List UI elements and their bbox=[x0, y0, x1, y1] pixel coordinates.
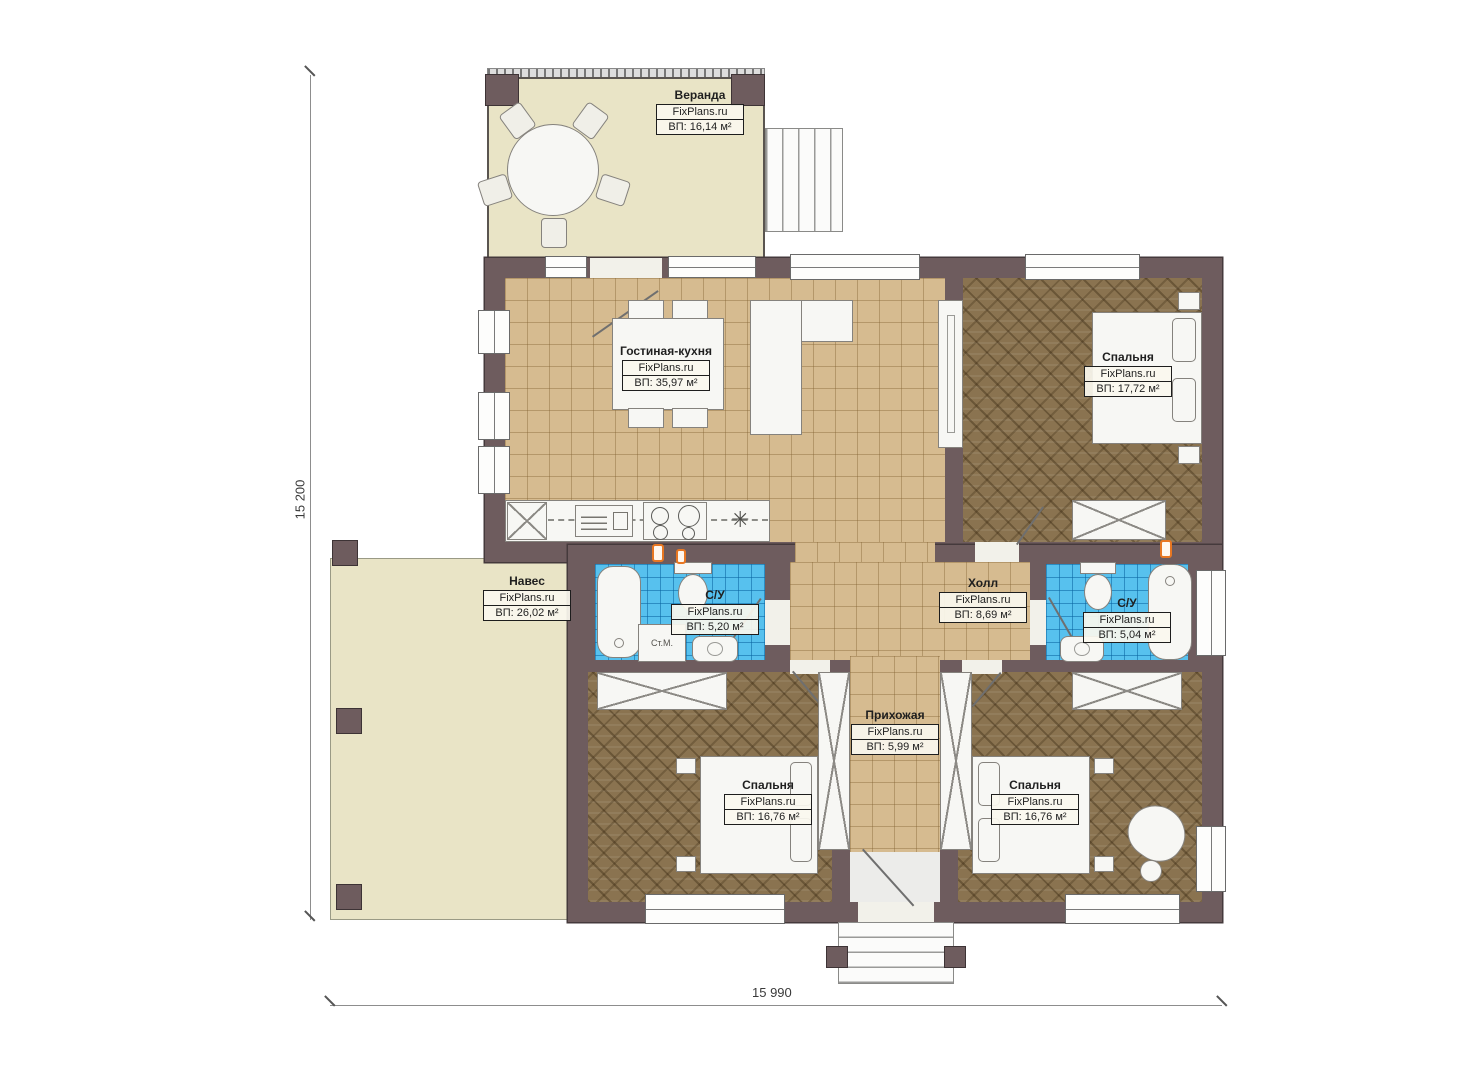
room-name: Навес bbox=[509, 574, 545, 588]
room-name: С/У bbox=[705, 588, 724, 602]
window bbox=[478, 392, 510, 440]
bathtub-drain bbox=[614, 638, 624, 648]
room-label-bedroom-bottom-right: Спальня FixPlans.ru ВП: 16,76 м² bbox=[970, 778, 1100, 825]
dining-chair bbox=[628, 408, 664, 428]
entry-vestibule-floor bbox=[850, 852, 940, 902]
nightstand bbox=[676, 758, 696, 774]
room-area: ВП: 5,04 м² bbox=[1084, 628, 1170, 642]
nightstand bbox=[676, 856, 696, 872]
room-area: ВП: 16,76 м² bbox=[725, 810, 811, 824]
window bbox=[545, 256, 587, 278]
wardrobe bbox=[1072, 672, 1182, 710]
window bbox=[1196, 570, 1226, 656]
wardrobe bbox=[597, 672, 727, 710]
veranda-post bbox=[485, 74, 519, 106]
room-name: Спальня bbox=[742, 778, 794, 792]
water-heater-icon bbox=[1160, 540, 1172, 558]
window bbox=[1065, 894, 1180, 924]
water-heater-icon bbox=[652, 544, 664, 562]
room-area: ВП: 5,20 м² bbox=[672, 620, 758, 634]
dimension-label-horizontal: 15 990 bbox=[752, 985, 792, 1000]
toilet-icon bbox=[1080, 562, 1116, 574]
brand-link: FixPlans.ru bbox=[1084, 613, 1170, 628]
porch-steps bbox=[838, 922, 954, 984]
room-label-hall: Холл FixPlans.ru ВП: 8,69 м² bbox=[918, 576, 1048, 623]
veranda-table bbox=[507, 124, 599, 216]
window bbox=[790, 254, 920, 280]
window bbox=[1025, 254, 1140, 280]
room-name: Холл bbox=[968, 576, 998, 590]
room-label-entry-hall: Прихожая FixPlans.ru ВП: 5,99 м² bbox=[830, 708, 960, 755]
room-label-bathroom-left: С/У FixPlans.ru ВП: 5,20 м² bbox=[650, 588, 780, 635]
room-area: ВП: 35,97 м² bbox=[623, 376, 709, 390]
room-label-bedroom-bottom-left: Спальня FixPlans.ru ВП: 16,76 м² bbox=[703, 778, 833, 825]
dining-chair bbox=[628, 300, 664, 320]
dimension-label-vertical: 15 200 bbox=[292, 480, 307, 520]
window bbox=[668, 256, 756, 278]
brand-link: FixPlans.ru bbox=[1085, 367, 1171, 382]
window bbox=[478, 446, 510, 494]
room-name: С/У bbox=[1117, 596, 1136, 610]
canopy-post bbox=[336, 708, 362, 734]
chair-icon bbox=[541, 218, 567, 248]
sink-icon bbox=[692, 636, 738, 662]
room-area: ВП: 5,99 м² bbox=[852, 740, 938, 754]
wardrobe bbox=[1072, 500, 1166, 540]
room-name: Спальня bbox=[1102, 350, 1154, 364]
room-label-bathroom-right: С/У FixPlans.ru ВП: 5,04 м² bbox=[1062, 596, 1192, 643]
fridge-icon bbox=[507, 502, 547, 540]
nightstand bbox=[1094, 856, 1114, 872]
water-heater-icon bbox=[676, 549, 686, 564]
brand-link: FixPlans.ru bbox=[484, 591, 570, 606]
window bbox=[1196, 826, 1226, 892]
sofa bbox=[750, 300, 802, 435]
canopy-post bbox=[332, 540, 358, 566]
room-area: ВП: 26,02 м² bbox=[484, 606, 570, 620]
nightstand bbox=[1178, 292, 1200, 310]
brand-link: FixPlans.ru bbox=[623, 361, 709, 376]
room-area: ВП: 8,69 м² bbox=[940, 608, 1026, 622]
brand-link: FixPlans.ru bbox=[657, 105, 743, 120]
bedroom-tr-door-opening bbox=[975, 542, 1019, 562]
window bbox=[478, 310, 510, 354]
brand-link: FixPlans.ru bbox=[992, 795, 1078, 810]
room-label-veranda: Веранда FixPlans.ru ВП: 16,14 м² bbox=[635, 88, 765, 135]
dining-chair bbox=[672, 300, 708, 320]
hall-living-opening bbox=[795, 542, 935, 564]
tv-stand bbox=[938, 300, 963, 448]
canopy-post bbox=[336, 884, 362, 910]
vent-icon: ✳ bbox=[731, 506, 749, 534]
corridor-floor bbox=[850, 672, 940, 852]
bathtub-drain bbox=[1165, 576, 1175, 586]
floor-plan: 15 200 15 990 bbox=[0, 0, 1473, 1080]
veranda-stairs bbox=[765, 128, 843, 232]
brand-link: FixPlans.ru bbox=[725, 795, 811, 810]
oven-icon bbox=[575, 505, 633, 537]
stool-icon bbox=[1140, 860, 1162, 882]
room-name: Спальня bbox=[1009, 778, 1061, 792]
nightstand bbox=[1094, 758, 1114, 774]
stove-icon bbox=[643, 502, 707, 540]
brand-link: FixPlans.ru bbox=[940, 593, 1026, 608]
window bbox=[645, 894, 785, 924]
porch-post bbox=[944, 946, 966, 968]
room-area: ВП: 16,76 м² bbox=[992, 810, 1078, 824]
veranda-door-opening bbox=[590, 258, 662, 278]
front-door-opening bbox=[858, 902, 934, 922]
room-name: Гостиная-кухня bbox=[620, 344, 712, 358]
room-area: ВП: 17,72 м² bbox=[1085, 382, 1171, 396]
room-area: ВП: 16,14 м² bbox=[657, 120, 743, 134]
closet-panel bbox=[940, 672, 972, 850]
porch-post bbox=[826, 946, 848, 968]
brand-link: FixPlans.ru bbox=[852, 725, 938, 740]
room-name: Веранда bbox=[675, 88, 726, 102]
nightstand bbox=[1178, 446, 1200, 464]
dimension-line-horizontal bbox=[330, 1005, 1222, 1006]
room-label-living-kitchen: Гостиная-кухня FixPlans.ru ВП: 35,97 м² bbox=[601, 344, 731, 391]
room-label-canopy: Навес FixPlans.ru ВП: 26,02 м² bbox=[462, 574, 592, 621]
room-label-bedroom-top-right: Спальня FixPlans.ru ВП: 17,72 м² bbox=[1063, 350, 1193, 397]
room-name: Прихожая bbox=[865, 708, 924, 722]
brand-link: FixPlans.ru bbox=[672, 605, 758, 620]
dining-chair bbox=[672, 408, 708, 428]
dimension-line-vertical bbox=[310, 75, 311, 920]
washing-machine-label: Ст.М. bbox=[651, 638, 673, 648]
